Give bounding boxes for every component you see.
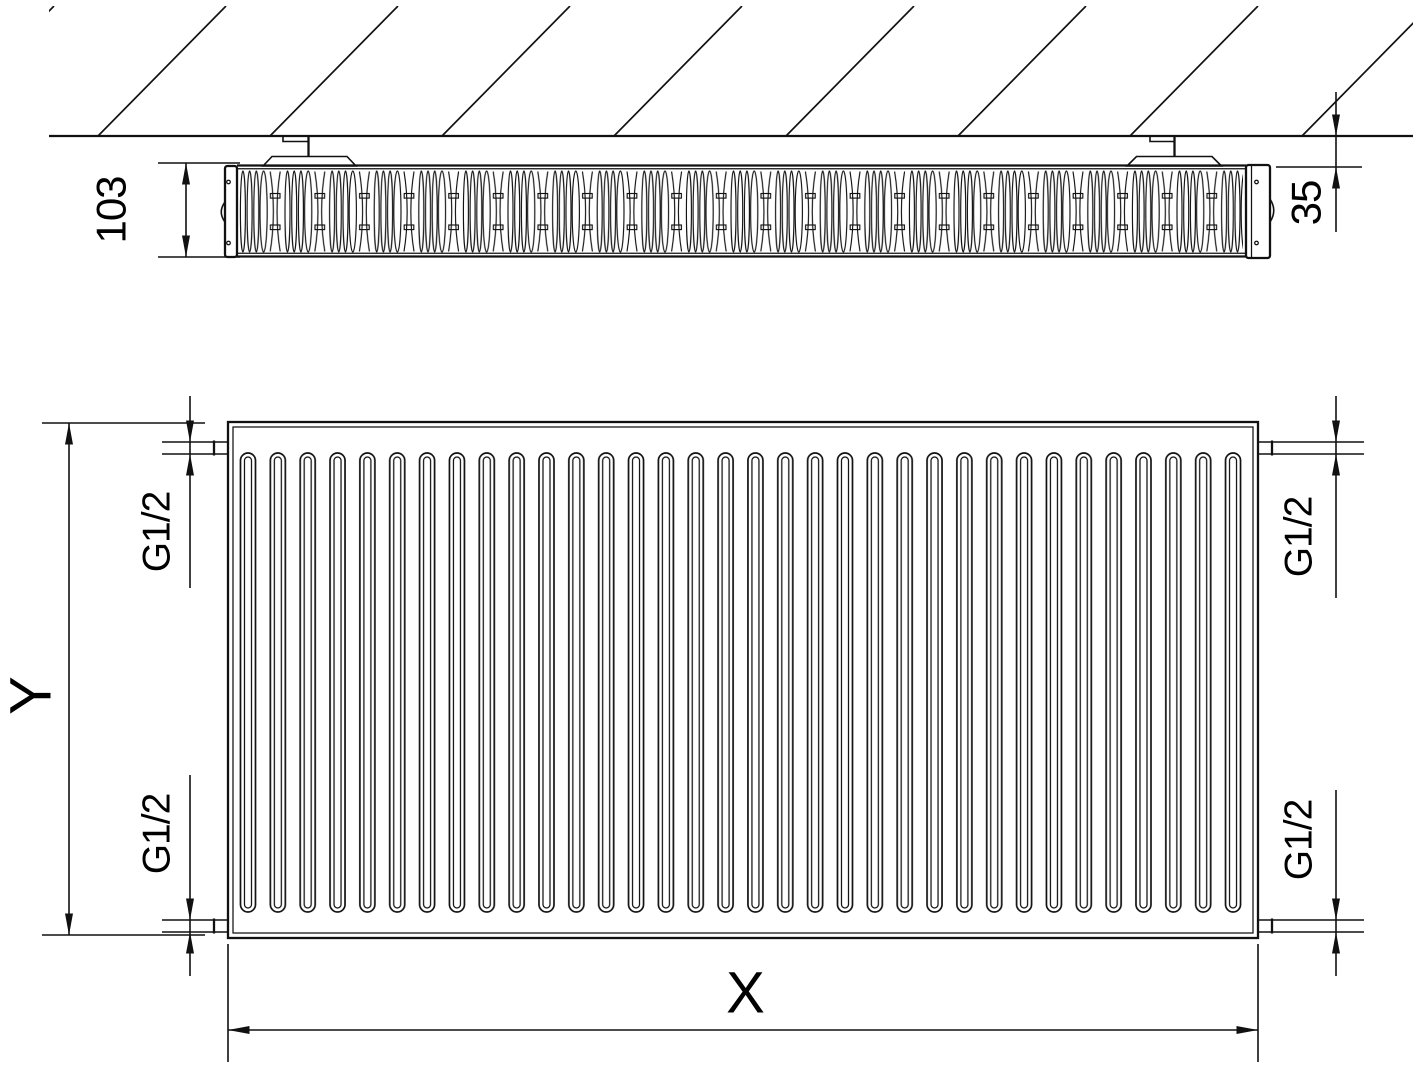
connection-size-label-bottom-right: G1/2 <box>1278 800 1321 881</box>
mounting-bracket-right <box>1127 136 1222 166</box>
connection-stub-top-right <box>1258 441 1364 456</box>
dimension-connection-top-left: G1/2 <box>136 396 195 588</box>
mounting-bracket-left <box>263 136 356 166</box>
dim-depth-label: 103 <box>88 176 135 243</box>
dimension-connection-bottom-right: G1/2 <box>1278 790 1341 976</box>
connection-stub-bottom-right <box>1258 919 1364 934</box>
dim-wall-distance-label: 35 <box>1283 181 1330 226</box>
radiator-front-panel <box>228 422 1258 938</box>
dimension-connection-bottom-left: G1/2 <box>136 775 195 976</box>
radiator-top-view-body <box>221 165 1274 258</box>
dimension-width: X <box>228 944 1258 1062</box>
front-view: G1/2 G1/2 G1/2 G1/2 Y <box>0 396 1364 1062</box>
radiator-technical-drawing: 103 35 <box>0 0 1425 1071</box>
dim-height-label: Y <box>0 677 64 715</box>
end-cap-right <box>1246 165 1274 258</box>
connection-size-label-top-right: G1/2 <box>1278 497 1321 578</box>
panel-grooves <box>233 450 1248 918</box>
top-view: 103 35 <box>49 6 1413 258</box>
connection-stub-bottom-left <box>162 919 228 934</box>
dim-width-label: X <box>726 961 764 1026</box>
convector-fins-pattern <box>239 170 1243 253</box>
connection-stub-top-left <box>162 441 228 456</box>
dimension-depth: 103 <box>88 163 241 257</box>
dimension-connection-top-right: G1/2 <box>1278 396 1341 598</box>
connection-size-label-top-left: G1/2 <box>136 492 179 573</box>
connection-size-label-bottom-left: G1/2 <box>136 794 179 875</box>
end-cap-left <box>221 166 237 257</box>
wall-hatching <box>49 6 1413 136</box>
